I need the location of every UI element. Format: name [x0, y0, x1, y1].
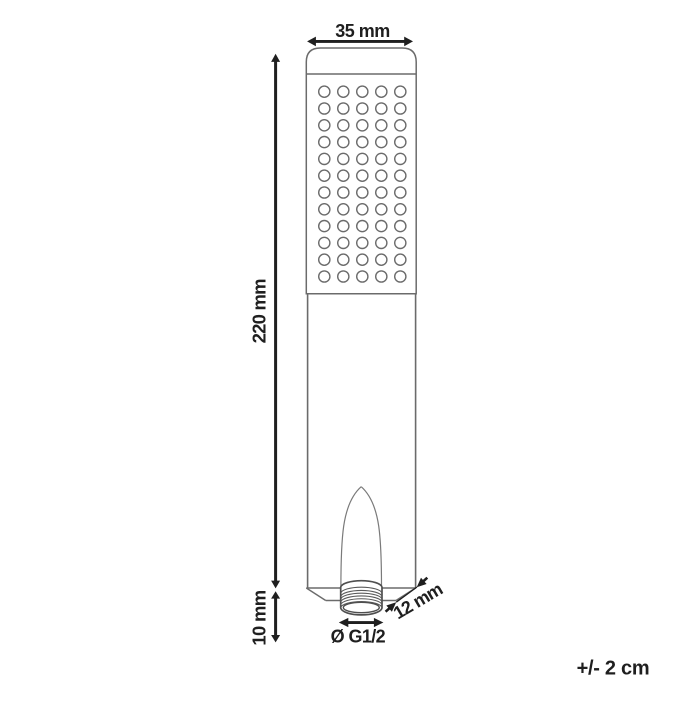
svg-text:220 mm: 220 mm — [249, 279, 270, 343]
svg-text:Ø G1/2: Ø G1/2 — [331, 627, 386, 647]
svg-text:10 mm: 10 mm — [249, 590, 270, 645]
svg-text:+/- 2 cm: +/- 2 cm — [577, 658, 650, 680]
svg-text:35 mm: 35 mm — [335, 21, 390, 41]
